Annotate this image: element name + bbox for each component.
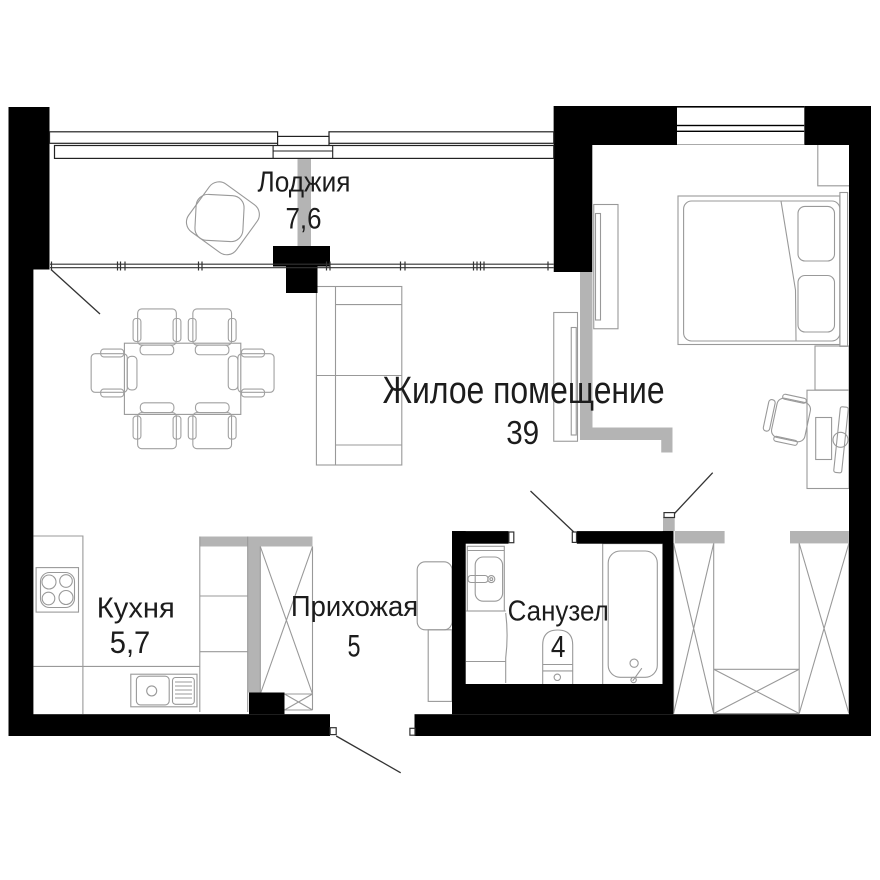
svg-text:Кухня: Кухня [97, 593, 175, 625]
svg-text:5,7: 5,7 [110, 624, 151, 660]
svg-text:39: 39 [506, 414, 539, 451]
svg-text:5: 5 [348, 628, 361, 664]
svg-text:Лоджия: Лоджия [258, 167, 351, 199]
svg-text:Жилое помещение: Жилое помещение [383, 370, 665, 412]
svg-text:Санузел: Санузел [508, 595, 609, 627]
svg-text:4: 4 [551, 630, 566, 664]
svg-text:7,6: 7,6 [286, 202, 322, 235]
svg-text:Прихожая: Прихожая [291, 591, 418, 623]
